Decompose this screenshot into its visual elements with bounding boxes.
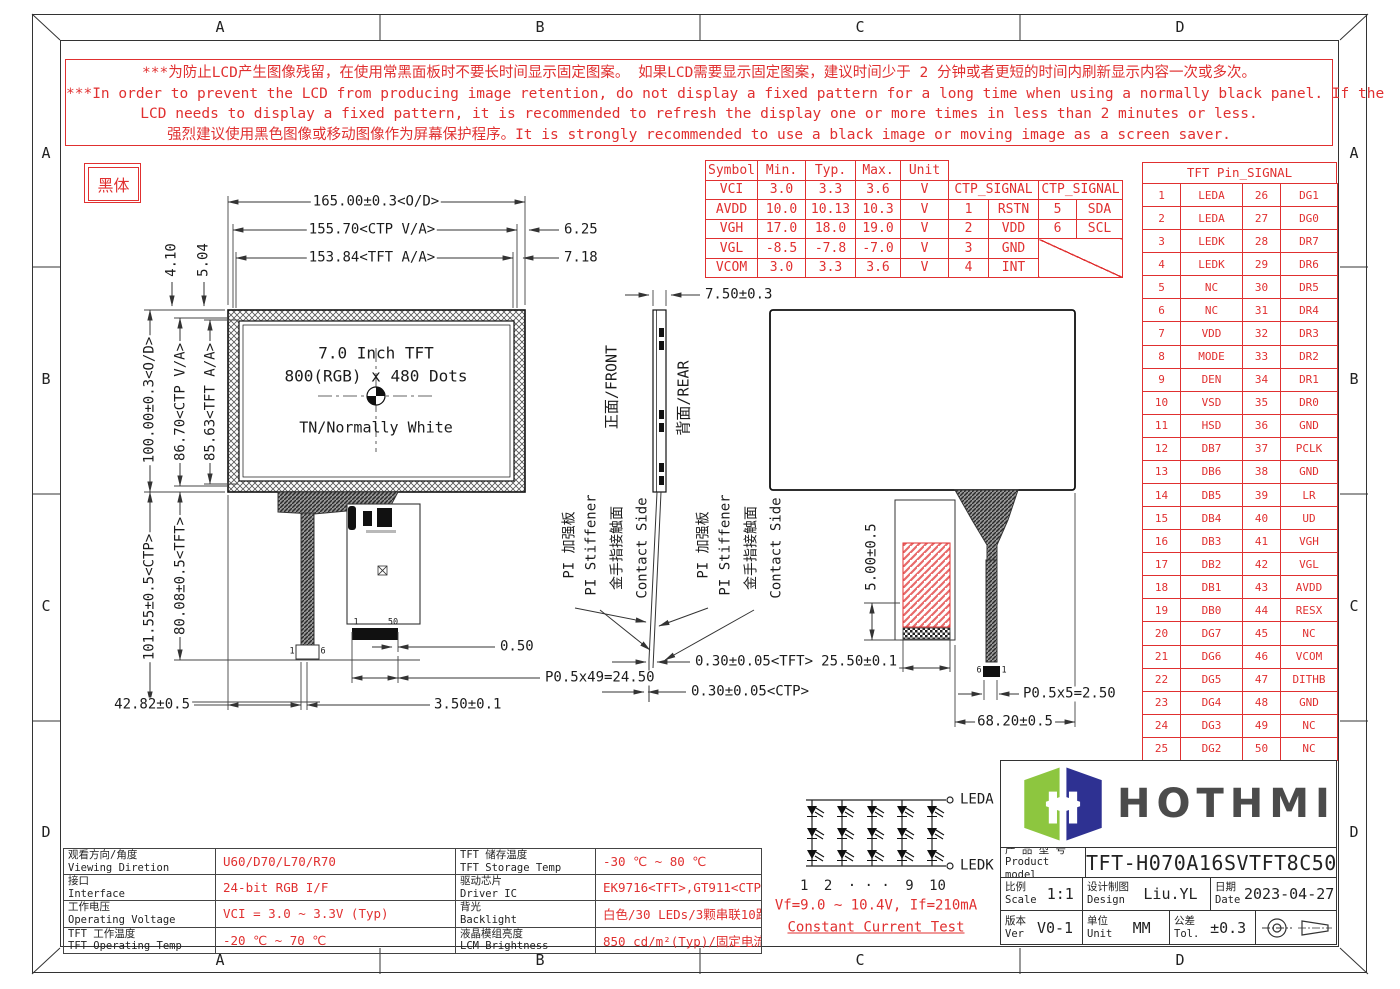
grid-label: D (32, 719, 60, 945)
table-row: 2VDD6SCL (949, 219, 1123, 239)
table-row: TFT 工作温度TFT Operating Temp-20 ℃ ~ 70 ℃液晶… (64, 927, 762, 953)
projection-symbol-cell (1255, 911, 1336, 944)
panel-resolution-label: 800(RGB) x 480 Dots (282, 369, 469, 384)
dim-stiffener-height: 5.00±0.5 (865, 521, 880, 592)
empty-diagonal-cell (1039, 239, 1123, 278)
ctp-pin-first: 1 (289, 645, 294, 660)
tolerance-cell: 公差 Tol. ±0.3 (1169, 911, 1255, 944)
grid-rows-right: ABCD (1340, 40, 1368, 945)
table-row: CTP_SIGNALCTP_SIGNAL (949, 180, 1123, 200)
table-row: 25DG250NC (1143, 737, 1338, 760)
table-row: 9DEN34DR1 (1143, 368, 1338, 391)
dim-top-offset-1: 4.10 (165, 241, 180, 279)
backlight-test-note: Constant Current Test (785, 921, 966, 936)
product-model-label: 产 品 型 号 Product model (1001, 848, 1085, 877)
dim-fpc-offset: 3.50±0.1 (432, 698, 503, 713)
third-angle-projection-icon (1260, 915, 1332, 941)
led-column-numbers: 12· · ·910 (800, 878, 946, 894)
side-view (649, 310, 666, 702)
scale-value: 1:1 (1039, 885, 1082, 903)
grid-label: A (1340, 40, 1368, 266)
tolerance-label-en: Tol. (1174, 928, 1199, 941)
table-row: 20DG745NC (1143, 622, 1338, 645)
table-row: 5NC30DR5 (1143, 276, 1338, 299)
scale-cell: 比例 Scale 1:1 (1001, 878, 1082, 910)
grid-label: C (32, 493, 60, 719)
scale-label-en: Scale (1005, 894, 1037, 907)
table-row: 工作电压Operating VoltageVCI = 3.0 ~ 3.3V (T… (64, 901, 762, 927)
led-column-number: 2 (824, 878, 832, 894)
version-label-en: Ver (1005, 928, 1026, 941)
contact-label-zh: 金手指接触面 (745, 504, 760, 592)
grid-label: A (60, 14, 380, 40)
dim-thickness: 7.50±0.3 (703, 288, 774, 303)
table-row: 12DB737PCLK (1143, 437, 1338, 460)
table-row: 13DB638GND (1143, 460, 1338, 483)
grid-label: B (1340, 266, 1368, 492)
version-cell: 版本 Ver V0-1 (1001, 911, 1082, 944)
leda-terminal-label: LEDA (958, 793, 996, 808)
front-view-fpc (278, 492, 420, 659)
dim-top-offset-2: 5.04 (197, 241, 212, 279)
version-value: V0-1 (1028, 919, 1082, 937)
table-row: 6NC31DR4 (1143, 299, 1338, 322)
table-row: SymbolMin.Typ.Max.Unit (706, 161, 949, 181)
title-block: H HOTHMI 产 品 型 号 Product model TFT-H070A… (1000, 760, 1337, 945)
warning-line: ***In order to prevent the LCD from prod… (66, 84, 1332, 105)
table-row: 3GND (949, 239, 1123, 259)
table-row: 11HSD36GND (1143, 414, 1338, 437)
product-model-cell: TFT-H070A16SVTFT8C50 (1085, 848, 1336, 877)
dim-tft-aa-height: 85.63<TFT A/A> (204, 341, 219, 463)
dim-outline-width: 165.00±0.3<O/D> (311, 195, 441, 210)
ctp-signal-table: CTP_SIGNALCTP_SIGNAL1RSTN5SDA2VDD6SCL3GN… (948, 180, 1122, 279)
grid-label: D (1020, 947, 1340, 973)
led-column-number: 10 (929, 878, 946, 894)
product-label-en: Product model (1005, 856, 1083, 877)
font-note-box: 黑体 (84, 163, 141, 203)
rear-view (770, 310, 1075, 677)
electrical-characteristics-table: SymbolMin.Typ.Max.UnitVCI3.03.33.6VAVDD1… (705, 160, 948, 278)
dim-tft-pitch: P0.5x49=24.50 (543, 671, 657, 686)
table-row: AVDD10.010.1310.3V (706, 200, 949, 220)
table-row: 17DB242VGL (1143, 553, 1338, 576)
design-label-en: Design (1087, 894, 1129, 907)
table-row: 19DB044RESX (1143, 599, 1338, 622)
ctp-pin-last: 6 (320, 645, 325, 660)
front-side-label: 正面/FRONT (605, 343, 620, 431)
led-column-number: 9 (905, 878, 913, 894)
grid-columns-top: ABCD (60, 14, 1340, 40)
grid-rows-left: ABCD (32, 40, 60, 945)
logo-row: H HOTHMI (1001, 761, 1336, 847)
front-view-panel (228, 310, 525, 492)
grid-label: C (1340, 493, 1368, 719)
scale-design-date-row: 比例 Scale 1:1 设计制图 Design Liu.YL 日期 Date … (1001, 877, 1336, 910)
table-row: 7VDD32DR3 (1143, 322, 1338, 345)
hothmi-logo-icon: H (1011, 763, 1115, 845)
dim-ctp-pitch: P0.5x5=2.50 (1021, 687, 1118, 702)
stiffener-label-en: PI Stiffener (585, 492, 600, 597)
dim-tft-length: 80.08±0.5<TFT> (174, 515, 189, 637)
contact-label-zh: 金手指接触面 (611, 504, 626, 592)
dim-ctp-va-height: 86.70<CTP V/A> (174, 341, 189, 463)
grid-label: D (1340, 719, 1368, 945)
table-row: VCOM3.03.33.6V (706, 258, 949, 278)
backlight-vf-spec: Vf=9.0 ~ 10.4V, If=210mA (773, 899, 979, 914)
dim-ctp-length: 101.55±0.5<CTP> (143, 532, 158, 662)
table-row: VGH17.018.019.0V (706, 219, 949, 239)
svg-text:H: H (1045, 784, 1081, 834)
unit-label-zh: 单位 (1087, 915, 1112, 928)
ctp-connector (296, 645, 319, 659)
contact-label-en: Contact Side (770, 495, 785, 600)
product-model-row: 产 品 型 号 Product model TFT-H070A16SVTFT8C… (1001, 847, 1336, 877)
table-row: 接口Interface24-bit RGB I/F驱动芯片Driver ICEK… (64, 875, 762, 901)
dim-ctp-va-width: 155.70<CTP V/A> (307, 223, 437, 238)
warning-line: 强烈建议使用黑色图像或移动图像作为屏幕保护程序。It is strongly r… (66, 125, 1332, 146)
table-row: 15DB440UD (1143, 507, 1338, 530)
date-label-en: Date (1215, 894, 1240, 907)
unit-label-en: Unit (1087, 928, 1112, 941)
table-row: 4LEDK29DR6 (1143, 253, 1338, 276)
table-row: 1LEDA26DG1 (1143, 184, 1338, 207)
dim-rear-fpc-position: 68.20±0.5 (975, 715, 1055, 730)
dim-outline-height: 100.00±0.3<O/D> (143, 335, 158, 465)
table-row: 1RSTN5SDA (949, 200, 1123, 220)
engineering-drawing-page: ABCD ABCD ABCD ABCD (0, 0, 1400, 989)
warning-line: LCD needs to display a fixed pattern, it… (66, 104, 1332, 125)
brand-wordmark: HOTHMI (1117, 781, 1336, 827)
product-label-zh: 产 品 型 号 (1005, 848, 1083, 856)
dim-ctp-offset: 6.25 (562, 223, 600, 238)
design-label-zh: 设计制图 (1087, 881, 1129, 894)
grid-label: A (32, 40, 60, 266)
pin-table-title: TFT Pin_SIGNAL (1142, 162, 1337, 183)
led-column-number: 1 (800, 878, 808, 894)
version-label-zh: 版本 (1005, 915, 1026, 928)
dim-fpc-position: 42.82±0.5 (112, 698, 192, 713)
table-row: 10VSD35DR0 (1143, 391, 1338, 414)
table-row: 23DG448GND (1143, 691, 1338, 714)
rear-side-label: 背面/REAR (677, 358, 692, 437)
rear-pin-last: 1 (1001, 664, 1006, 679)
date-value: 2023-04-27 (1242, 885, 1336, 903)
stiffener-label-en: PI Stiffener (719, 492, 734, 597)
date-label-zh: 日期 (1215, 881, 1240, 894)
table-row: 21DG646VCOM (1143, 645, 1338, 668)
version-unit-tolerance-row: 版本 Ver V0-1 单位 Unit MM 公差 Tol. ±0.3 (1001, 910, 1336, 944)
date-cell: 日期 Date 2023-04-27 (1210, 878, 1336, 910)
grid-label: C (700, 14, 1020, 40)
image-retention-warning: ***为防止LCD产生图像残留，在使用常黑面板时不要长时间显示固定图案。 如果L… (65, 59, 1333, 146)
table-row: 24DG349NC (1143, 714, 1338, 737)
scale-label-zh: 比例 (1005, 881, 1037, 894)
grid-label: B (380, 14, 700, 40)
tft-pin-last: 50 (388, 616, 398, 631)
contact-label-en: Contact Side (636, 495, 651, 600)
design-cell: 设计制图 Design Liu.YL (1082, 878, 1210, 910)
table-row: 观看方向/角度Viewing DiretionU60/D70/L70/R70TF… (64, 849, 762, 875)
rear-connector (983, 666, 1000, 677)
stiffener-area (903, 543, 950, 627)
unit-value: MM (1114, 919, 1169, 937)
table-row: VCI3.03.33.6V (706, 180, 949, 200)
table-row: 22DG547DITHB (1143, 668, 1338, 691)
stiffener-label-zh: PI 加强板 (563, 509, 578, 580)
grid-label: D (1020, 14, 1340, 40)
dim-ctp-fpc-thickness: 0.30±0.05<CTP> (689, 685, 811, 700)
table-row: VGL-8.5-7.8-7.0V (706, 239, 949, 259)
dim-stiffener-width: 25.50±0.1 (819, 655, 899, 670)
unit-cell: 单位 Unit MM (1082, 911, 1169, 944)
table-row: 8MODE33DR2 (1143, 345, 1338, 368)
tolerance-label-zh: 公差 (1174, 915, 1199, 928)
dim-tft-fpc-thickness: 0.30±0.05<TFT> (693, 655, 815, 670)
panel-size-label: 7.0 Inch TFT (316, 346, 436, 361)
dim-tft-aa-width: 153.84<TFT A/A> (307, 251, 437, 266)
dim-tft-offset: 7.18 (562, 251, 600, 266)
stiffener-label-zh: PI 加强板 (697, 509, 712, 580)
led-circuit (806, 797, 953, 869)
rear-pin-first: 6 (976, 664, 981, 679)
warning-line: ***为防止LCD产生图像残留，在使用常黑面板时不要长时间显示固定图案。 如果L… (66, 63, 1332, 84)
specification-table: 观看方向/角度Viewing DiretionU60/D70/L70/R70TF… (63, 848, 761, 945)
dim-pin-end: 0.50 (498, 640, 536, 655)
product-model-value: TFT-H070A16SVTFT8C50 (1086, 851, 1336, 875)
grid-label: B (32, 266, 60, 492)
table-row: 18DB143AVDD (1143, 576, 1338, 599)
ledk-terminal-label: LEDK (958, 859, 996, 874)
panel-mode-label: TN/Normally White (297, 421, 455, 436)
tft-pin-first: 1 (353, 616, 358, 631)
table-row: 14DB539LR (1143, 484, 1338, 507)
table-row: 2LEDA27DG0 (1143, 207, 1338, 230)
font-note-label: 黑体 (88, 167, 139, 201)
table-row: 3LEDK28DR7 (1143, 230, 1338, 253)
designer-value: Liu.YL (1131, 885, 1210, 903)
tft-pin-signal-table: TFT Pin_SIGNAL 1LEDA26DG12LEDA27DG03LEDK… (1142, 162, 1337, 760)
tolerance-value: ±0.3 (1201, 919, 1255, 937)
table-row: 16DB341VGH (1143, 530, 1338, 553)
led-column-number: · · · (848, 878, 890, 894)
